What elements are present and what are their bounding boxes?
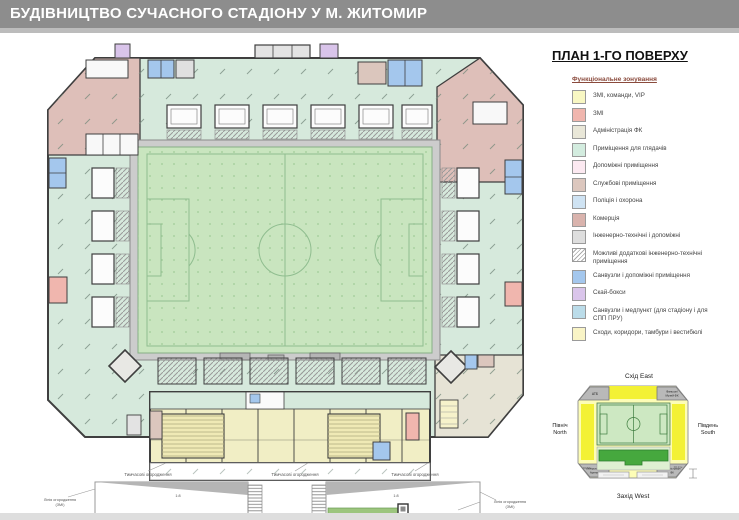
annotation-fence-line: Лінія огородження: [494, 500, 526, 504]
west-corridor: [150, 392, 430, 409]
grating-block: [248, 485, 262, 515]
legend-swatch: [572, 108, 586, 122]
level-mark: ±0,0 м: [674, 465, 683, 469]
titlebar-shadow: [0, 28, 739, 33]
annotation-slope: 1:8: [393, 494, 398, 498]
legend-swatch: [572, 213, 586, 227]
page-title: БУДІВНИЦТВО СУЧАСНОГО СТАДІОНУ У М. ЖИТО…: [0, 0, 739, 28]
corner-label-administration: ФК: [670, 471, 674, 475]
panel-title: ПЛАН 1-ГО ПОВЕРХУ: [552, 48, 738, 63]
annotation-slope: 1:8: [175, 494, 180, 498]
ramp-west-right: [312, 482, 480, 515]
legend-swatch: [572, 90, 586, 104]
bottom-strip: [0, 513, 739, 520]
north-label: Північ: [552, 423, 567, 429]
annotation-temp-fence: Тимчасові огородження: [271, 472, 319, 477]
legend-label: Поліція і охорона: [593, 195, 718, 209]
annotation-fence-line: (ЗМІ): [505, 505, 515, 509]
legend-swatch: [572, 287, 586, 301]
legend-swatch: [572, 143, 586, 157]
legend-item: Приміщення для глядачів: [572, 143, 738, 157]
annotation-temp-fence: Тимчасові огородження: [391, 472, 439, 477]
legend-item: ЗМІ, команди, VIP: [572, 90, 738, 104]
legend-item: Службові приміщення: [572, 178, 738, 192]
legend-item: Можливі додаткові інженерно-технічні при…: [572, 248, 738, 267]
legend-label: ЗМІ, команди, VIP: [593, 90, 718, 104]
legend-title: Функціональне зонування: [572, 76, 738, 83]
grating-block: [312, 485, 326, 515]
legend-swatch: [572, 195, 586, 209]
legend-swatch: [572, 125, 586, 139]
legend-item: ЗМІ: [572, 108, 738, 122]
keyplan-east-label: Схід East: [625, 372, 653, 380]
legend-item: Інженерно-технічні і допоміжні: [572, 230, 738, 244]
north-label: North: [553, 430, 566, 436]
south-label: Південь: [698, 423, 718, 429]
floor-plan: Тимчасові огородження Тимчасові огородже…: [28, 42, 543, 520]
corner-label-cybersport: Арена: [590, 471, 599, 475]
key-plan: Схід East АТБ Фаншоп/ Музей ФК Кіберспор…: [545, 366, 739, 516]
legend-swatch: [572, 248, 586, 262]
annotation-temp-fence: Тимчасові огородження: [124, 472, 172, 477]
legend-item: Поліція і охорона: [572, 195, 738, 209]
keyplan-dim-bracket: [689, 469, 697, 478]
sanitary-room: [373, 442, 390, 460]
legend-swatch: [572, 230, 586, 244]
west-building: [150, 392, 430, 480]
legend-item: Сходи, коридори, тамбури і вестибюлі: [572, 327, 738, 341]
annotation-fence-line: Лінія огородження: [44, 498, 76, 502]
legend-item: Комерція: [572, 213, 738, 227]
annotation-fence-line: (ЗМІ): [55, 503, 65, 507]
media-room: [406, 413, 419, 440]
legend-panel: ПЛАН 1-ГО ПОВЕРХУ Функціональне зонуванн…: [552, 48, 738, 344]
legend-label: Санвузли і медпункт (для стадіону і для …: [593, 305, 718, 324]
legend-item: Допоміжні приміщення: [572, 160, 738, 174]
legend-label: Допоміжні приміщення: [593, 160, 718, 174]
legend-item: Скай-бокси: [572, 287, 738, 301]
level-mark: ±0,0 м: [583, 466, 592, 470]
legend-label: Приміщення для глядачів: [593, 143, 718, 157]
legend-label: ЗМІ: [593, 108, 718, 122]
legend-swatch: [572, 327, 586, 341]
legend-swatch: [572, 160, 586, 174]
legend-label: Службові приміщення: [593, 178, 718, 192]
north-edge-rooms: [115, 44, 338, 58]
west-label: Захід West: [617, 492, 650, 500]
legend-swatch: [572, 270, 586, 284]
legend-label: Санвузли і допоміжні приміщення: [593, 270, 718, 284]
skybox-room: [115, 44, 130, 58]
legend-label: Інженерно-технічні і допоміжні: [593, 230, 718, 244]
legend-swatch: [572, 305, 586, 319]
legend-label: Скай-бокси: [593, 287, 718, 301]
south-label: South: [701, 430, 715, 436]
legend-swatch: [572, 178, 586, 192]
legend-list: ЗМІ, команди, VIP ЗМІ Адміністрація ФК П…: [552, 90, 738, 341]
ramp-west-left: [95, 482, 262, 515]
legend-item: Адміністрація ФК: [572, 125, 738, 139]
corner-label-fanshop: Музей ФК: [665, 394, 678, 398]
legend-label: Можливі додаткові інженерно-технічні при…: [593, 248, 718, 267]
service-room: [150, 411, 162, 439]
skybox-room: [320, 44, 338, 58]
corner-label-atb: АТБ: [592, 392, 599, 396]
legend-label: Сходи, коридори, тамбури і вестибюлі: [593, 327, 718, 341]
legend-item: Санвузли і допоміжні приміщення: [572, 270, 738, 284]
legend-item: Санвузли і медпункт (для стадіону і для …: [572, 305, 738, 324]
legend-label: Адміністрація ФК: [593, 125, 718, 139]
legend-label: Комерція: [593, 213, 718, 227]
